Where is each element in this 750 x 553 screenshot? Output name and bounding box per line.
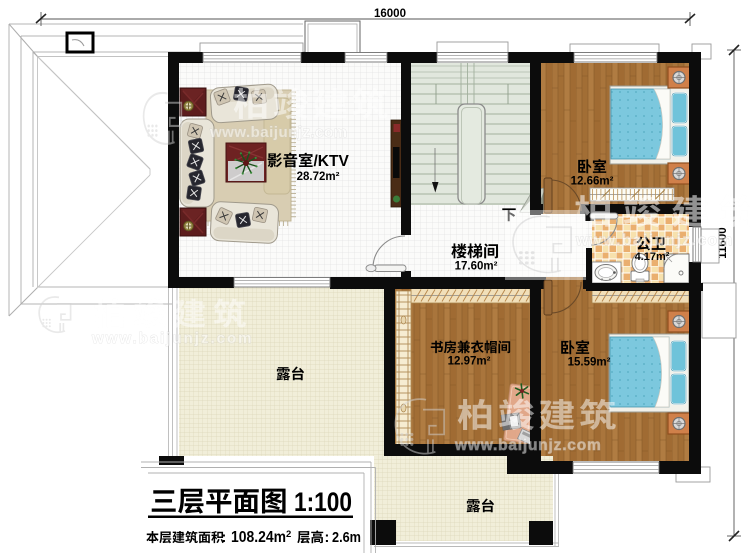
svg-text:1:100: 1:100 [294, 487, 352, 517]
svg-text::: : [222, 530, 227, 546]
svg-text:16000: 16000 [374, 8, 406, 20]
svg-text:www.baijunjz.com: www.baijunjz.com [454, 437, 602, 454]
svg-text:2.6m: 2.6m [332, 529, 361, 546]
svg-text:4.17m²: 4.17m² [635, 251, 670, 263]
svg-text:12.66m²: 12.66m² [571, 176, 614, 188]
svg-text:17.60m²: 17.60m² [455, 261, 498, 273]
svg-text::: : [325, 530, 330, 546]
svg-text:www.baijunjz.com: www.baijunjz.com [91, 330, 253, 347]
svg-text:108.24m: 108.24m [231, 529, 286, 546]
svg-text:12.97m²: 12.97m² [448, 356, 491, 368]
svg-text:/KTV: /KTV [314, 153, 350, 170]
svg-text:15.59m²: 15.59m² [568, 357, 611, 369]
svg-text:2: 2 [286, 529, 291, 540]
svg-text:www.baijunjz.com: www.baijunjz.com [209, 124, 347, 141]
svg-text:www.baijunjz.com: www.baijunjz.com [575, 232, 734, 249]
svg-text:28.72m²: 28.72m² [297, 171, 340, 183]
